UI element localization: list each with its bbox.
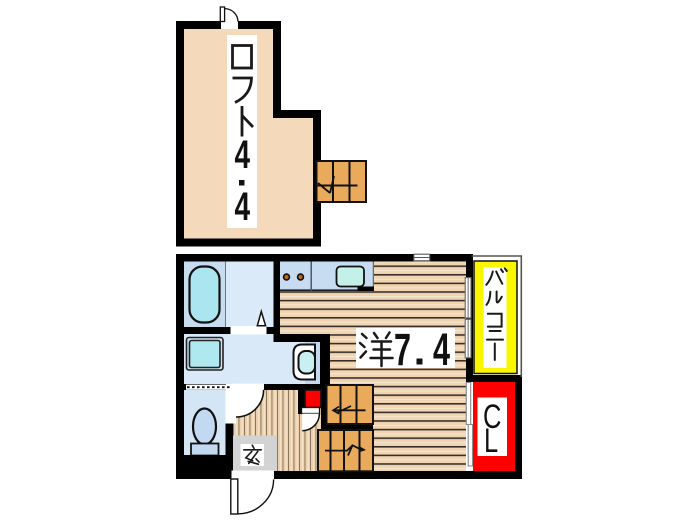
svg-text:4: 4 [235, 185, 251, 229]
svg-text:L: L [484, 423, 498, 460]
svg-text:4: 4 [433, 325, 450, 375]
svg-text:7: 7 [394, 325, 411, 375]
svg-text:4: 4 [235, 133, 251, 177]
